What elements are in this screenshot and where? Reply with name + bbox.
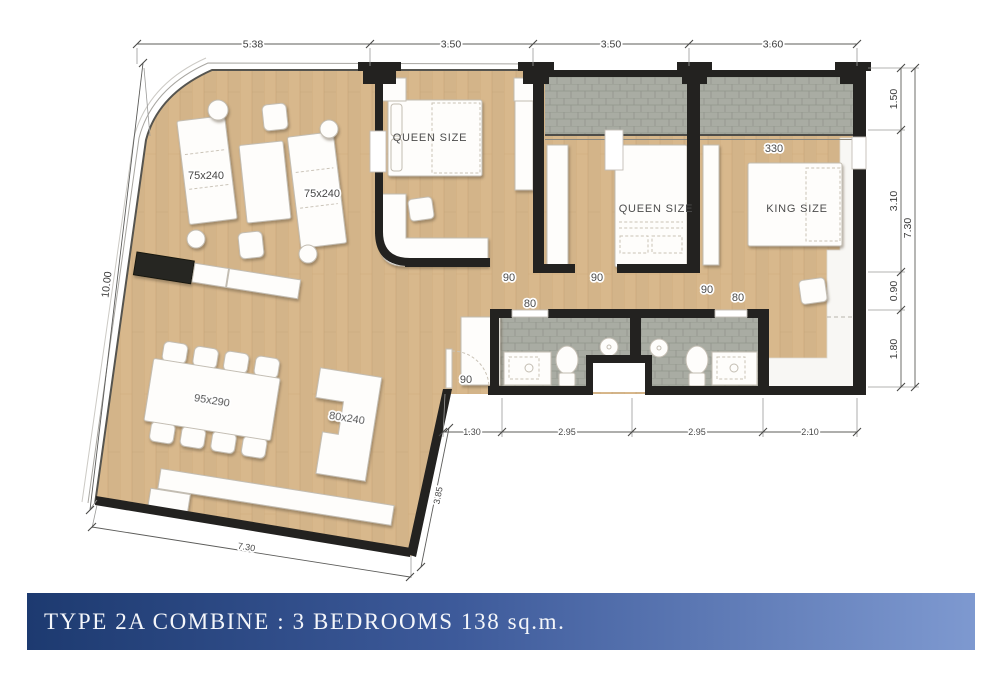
hall-door-label: 90 bbox=[460, 374, 472, 386]
balcony-bedroom2 bbox=[545, 74, 687, 135]
toilet-tank bbox=[689, 373, 705, 386]
wall-right bbox=[853, 70, 866, 394]
wall-bath-divider bbox=[630, 316, 641, 360]
dim-right-1: 3.10 bbox=[888, 191, 900, 212]
bath2-door-threshold bbox=[715, 310, 747, 317]
dim-top-3: 3.60 bbox=[763, 39, 784, 51]
service-niche bbox=[588, 358, 650, 392]
wall-bedroom2-bottom-stub bbox=[544, 264, 575, 273]
floor-plan-svg: 95x290 80x240 bbox=[0, 0, 1000, 677]
dim-bottom-3: 2.10 bbox=[801, 427, 819, 437]
dim-right-2: 0.90 bbox=[888, 281, 900, 302]
bedroom3-door-label: 90 bbox=[701, 284, 713, 296]
bathroom1-door-label: 80 bbox=[524, 298, 536, 310]
toilet bbox=[556, 346, 578, 374]
dining-set: 95x290 bbox=[141, 340, 283, 460]
bedroom2-door-label: 90 bbox=[591, 272, 603, 284]
entry-door-leaf bbox=[446, 349, 452, 388]
side-table-1 bbox=[208, 100, 228, 120]
wall-bath-left bbox=[490, 309, 499, 395]
wardrobe-bedroom1 bbox=[515, 88, 533, 190]
shower-head-center bbox=[657, 346, 661, 350]
bedroom3-width-label: 330 bbox=[765, 143, 783, 155]
wall-niche-right bbox=[645, 355, 652, 395]
wall-bedroom1-right bbox=[533, 70, 544, 273]
title-banner: TYPE 2A COMBINE : 3 BEDROOMS 138 sq.m. bbox=[27, 593, 975, 650]
bedroom2-bed-label: QUEEN SIZE bbox=[619, 203, 694, 215]
wardrobe-bedroom2 bbox=[547, 145, 568, 265]
pouf-top bbox=[262, 103, 289, 131]
dim-bottom-0: 1.30 bbox=[463, 427, 481, 437]
wall-bedroom2-3-divider bbox=[687, 70, 700, 273]
dim-right-total: 7.30 bbox=[902, 218, 914, 239]
bedroom1-door-label: 90 bbox=[503, 272, 515, 284]
bath1-door-threshold bbox=[512, 310, 548, 317]
sill-pier-bedroom2 bbox=[605, 130, 623, 170]
dim-left: 10.00 bbox=[99, 271, 114, 299]
wall-bottom-right bbox=[648, 386, 866, 395]
window-pier-bedroom1 bbox=[370, 131, 386, 172]
wall-bath-right bbox=[758, 316, 769, 395]
dim-top-0: 5.38 bbox=[243, 39, 264, 51]
dim-right-3: 1.80 bbox=[888, 339, 900, 360]
sink-drain bbox=[730, 364, 738, 372]
dim-top-1: 3.50 bbox=[441, 39, 462, 51]
toilet-tank bbox=[559, 373, 575, 386]
desk-stool bbox=[408, 196, 435, 221]
dim-right-0: 1.50 bbox=[888, 89, 900, 110]
floor-plan-page: 95x290 80x240 bbox=[0, 0, 1000, 677]
wardrobe-bedroom3 bbox=[703, 145, 719, 265]
dim-bottom-1: 2.95 bbox=[558, 427, 576, 437]
bedroom3-stool bbox=[798, 277, 827, 304]
wall-bottom-mid bbox=[488, 386, 588, 395]
lounger2-size-label: 75x240 bbox=[304, 188, 340, 200]
bathroom2-door-label: 80 bbox=[732, 292, 744, 304]
toilet bbox=[686, 346, 708, 374]
coffee-table bbox=[239, 141, 291, 223]
dim-bottom-edge: 7.30 bbox=[237, 541, 256, 554]
balcony-outer-wall bbox=[545, 70, 862, 77]
sink-drain bbox=[525, 364, 533, 372]
side-table-4 bbox=[299, 245, 317, 263]
wall-bedroom2-bottom bbox=[617, 264, 687, 273]
side-table-3 bbox=[320, 120, 338, 138]
bedroom1-bed-label: QUEEN SIZE bbox=[393, 132, 468, 144]
wall-bedroom1-bottom bbox=[405, 258, 490, 267]
window-pier-right-wall bbox=[852, 137, 866, 169]
plan-title: TYPE 2A COMBINE : 3 BEDROOMS 138 sq.m. bbox=[44, 609, 566, 635]
lounger1-size-label: 75x240 bbox=[188, 170, 224, 182]
bedroom3-bed-label: KING SIZE bbox=[766, 203, 828, 215]
wall-niche-top bbox=[586, 355, 652, 363]
side-table-2 bbox=[187, 230, 205, 248]
dim-top-2: 3.50 bbox=[601, 39, 622, 51]
wall-niche-left bbox=[586, 355, 593, 395]
dim-diagonal: 3.85 bbox=[431, 486, 444, 505]
shower-head-center bbox=[607, 345, 611, 349]
balcony-bedroom3 bbox=[700, 74, 858, 135]
pouf-bottom bbox=[238, 231, 265, 259]
dim-bottom-2: 2.95 bbox=[688, 427, 706, 437]
